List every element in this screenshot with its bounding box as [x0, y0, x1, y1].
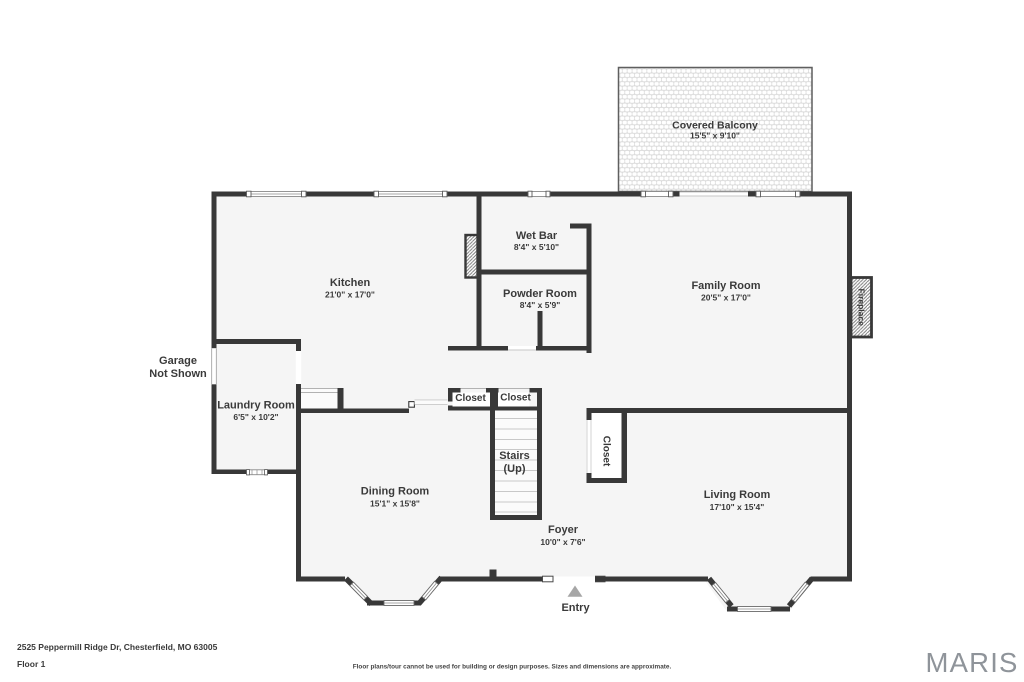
svg-text:Floor 1: Floor 1: [17, 659, 46, 669]
svg-text:15'1" x 15'8": 15'1" x 15'8": [370, 499, 420, 509]
svg-text:Dining Room: Dining Room: [361, 486, 430, 498]
svg-text:Powder Room: Powder Room: [503, 288, 577, 300]
svg-text:Living Room: Living Room: [704, 489, 771, 501]
svg-text:Floor plans/tour cannot be use: Floor plans/tour cannot be used for buil…: [353, 664, 672, 671]
svg-text:MARIS: MARIS: [926, 647, 1019, 678]
svg-text:Stairs: Stairs: [499, 450, 530, 462]
svg-text:8'4" x 5'10": 8'4" x 5'10": [514, 242, 559, 252]
svg-text:6'5" x 10'2": 6'5" x 10'2": [233, 412, 278, 422]
svg-text:Closet: Closet: [455, 393, 486, 404]
svg-text:(Up): (Up): [504, 463, 526, 475]
svg-text:Laundry Room: Laundry Room: [217, 400, 295, 412]
svg-text:17'10" x 15'4": 17'10" x 15'4": [710, 502, 765, 512]
svg-text:8'4" x 5'9": 8'4" x 5'9": [520, 300, 560, 310]
svg-text:Kitchen: Kitchen: [330, 277, 371, 289]
svg-text:15'5" x 9'10": 15'5" x 9'10": [690, 131, 740, 141]
svg-text:Foyer: Foyer: [548, 524, 579, 536]
svg-text:Closet: Closet: [601, 436, 612, 467]
svg-text:Garage: Garage: [159, 355, 197, 367]
svg-text:21'0" x 17'0": 21'0" x 17'0": [325, 290, 375, 300]
svg-text:20'5" x 17'0": 20'5" x 17'0": [701, 293, 751, 303]
svg-text:Fireplace: Fireplace: [856, 289, 866, 327]
svg-text:Wet Bar: Wet Bar: [516, 230, 558, 242]
svg-text:10'0" x 7'6": 10'0" x 7'6": [540, 537, 585, 547]
svg-text:Entry: Entry: [561, 602, 590, 614]
svg-text:Family Room: Family Room: [691, 280, 760, 292]
svg-text:Not Shown: Not Shown: [149, 368, 207, 380]
svg-text:Closet: Closet: [500, 393, 531, 404]
svg-text:2525 Peppermill Ridge Dr, Ches: 2525 Peppermill Ridge Dr, Chesterfield, …: [17, 642, 218, 652]
